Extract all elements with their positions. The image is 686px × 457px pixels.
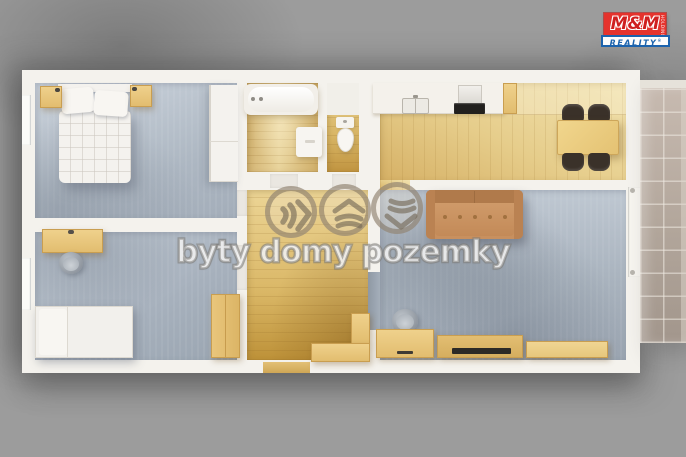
sofa-armrest-right — [514, 190, 523, 239]
floorplan-render: byty domy pozemky M&M HOLDING REALITY® — [0, 0, 686, 457]
nightstand-lamp — [55, 88, 60, 92]
double-bed-duvet — [59, 110, 131, 183]
kitchen-tall-cabinet — [503, 83, 517, 114]
dining-chair — [588, 153, 610, 171]
balcony-floor — [640, 88, 686, 343]
cooker-hood — [458, 85, 482, 104]
bathtub-basin — [248, 87, 314, 112]
dining-table — [557, 120, 619, 155]
tv-stand — [437, 335, 523, 358]
desk-chair — [59, 252, 83, 274]
window-kids-room — [22, 258, 31, 310]
watermark-chevrons-down-icon — [371, 182, 423, 234]
watermark-chevrons-up-icon — [319, 184, 371, 236]
logo-reality-bar: REALITY® — [601, 35, 670, 47]
toilet-button — [343, 120, 347, 123]
balcony-door-handle — [630, 188, 635, 193]
cooktop — [454, 103, 485, 114]
sofa-buttons — [443, 215, 447, 219]
watermark-chevrons-right-icon — [265, 186, 317, 238]
single-bed-divider — [67, 307, 68, 357]
sofa-seat — [435, 203, 514, 236]
logo-registered-mark: ® — [657, 38, 661, 43]
balcony — [640, 80, 686, 343]
nightstand-lamp — [132, 87, 137, 91]
bedroom-door — [237, 190, 247, 216]
dining-chair — [562, 153, 584, 171]
bathtub-faucet — [251, 97, 255, 101]
kids-wardrobe-divider — [225, 295, 226, 357]
wardrobe — [209, 85, 238, 182]
window-bedroom — [22, 95, 31, 145]
balcony-door-hinge — [630, 270, 635, 275]
desk-lamp — [68, 230, 74, 234]
entrance-threshold — [263, 362, 310, 373]
kitchen-sink-divider — [415, 99, 416, 113]
logo-mm-text: M&M — [611, 14, 660, 34]
shoe-cabinet — [311, 343, 370, 362]
balcony-right-edge — [681, 88, 686, 343]
wc-shelf — [327, 83, 359, 115]
living-desk-keyboard — [397, 351, 413, 354]
logo-holding-text: HOLDING — [660, 15, 665, 33]
pillow — [93, 90, 129, 117]
hallway-cabinet-vertical — [351, 313, 370, 344]
tv — [452, 348, 511, 354]
logo-mm-reality: M&M HOLDING — [604, 13, 666, 35]
logo-reality-text: REALITY — [610, 39, 658, 48]
watermark-text: byty domy pozemky — [175, 233, 511, 273]
kitchen-faucet — [413, 95, 418, 98]
sideboard — [526, 341, 608, 358]
single-bed-pillow — [39, 309, 67, 355]
washbasin-drain — [305, 140, 315, 143]
balcony-top-edge — [640, 80, 686, 88]
balcony-door — [628, 187, 640, 277]
wardrobe-divider — [210, 141, 238, 142]
kitchen-counter — [373, 83, 505, 114]
pillow — [60, 87, 95, 115]
sofa-seam — [474, 191, 475, 203]
